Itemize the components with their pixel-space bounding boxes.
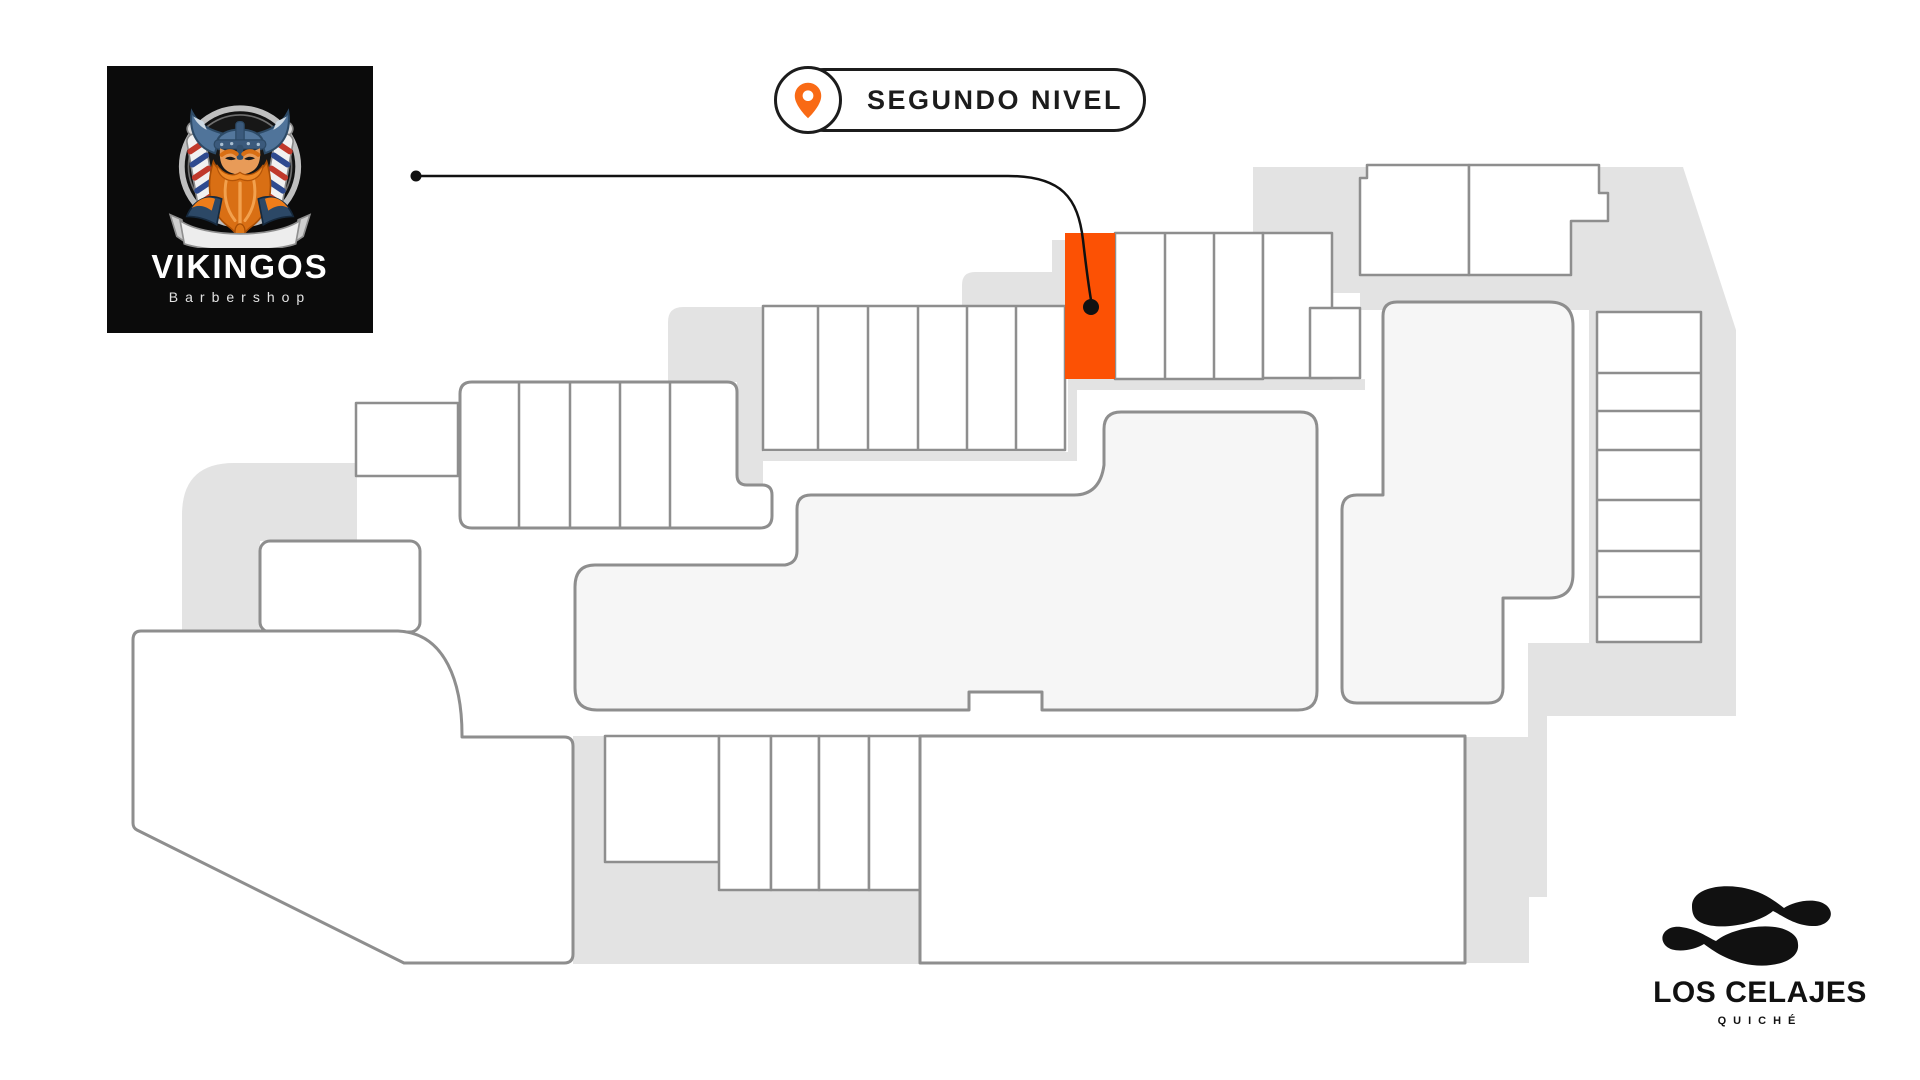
vikingos-logo-tagline: Barbershop	[169, 289, 311, 305]
store-unit	[819, 736, 869, 890]
celajes-cloud-icon	[1660, 878, 1860, 974]
vikingos-emblem-icon	[155, 90, 325, 248]
store-unit-block	[1115, 233, 1263, 379]
store-unit	[260, 541, 420, 632]
store-unit-block	[460, 382, 772, 528]
store-unit-block	[133, 631, 573, 963]
store-unit	[771, 736, 819, 890]
anchor-building-right	[1342, 302, 1573, 703]
store-unit-block	[763, 306, 1065, 450]
store-unit	[920, 736, 1465, 963]
level-badge-label: SEGUNDO NIVEL	[867, 85, 1123, 116]
location-pin-icon	[785, 77, 831, 123]
store-unit	[1360, 165, 1469, 275]
celajes-logo-tagline: QUICHÉ	[1718, 1015, 1803, 1027]
level-badge-pin	[774, 66, 842, 134]
callout-end-dot	[1083, 299, 1099, 315]
store-unit	[869, 736, 920, 890]
vikingos-logo-card: VIKINGOS Barbershop	[107, 66, 373, 333]
celajes-logo-name: LOS CELAJES	[1653, 978, 1867, 1008]
store-unit	[1310, 308, 1360, 378]
callout-start-dot	[411, 171, 422, 182]
store-unit	[719, 736, 771, 890]
store-unit	[605, 736, 719, 862]
store-unit-block	[1597, 312, 1701, 642]
vikingos-logo-name: VIKINGOS	[151, 250, 328, 283]
celajes-logo: LOS CELAJES QUICHÉ	[1640, 878, 1880, 1038]
store-unit	[356, 403, 458, 476]
level-badge: SEGUNDO NIVEL	[792, 68, 1146, 132]
